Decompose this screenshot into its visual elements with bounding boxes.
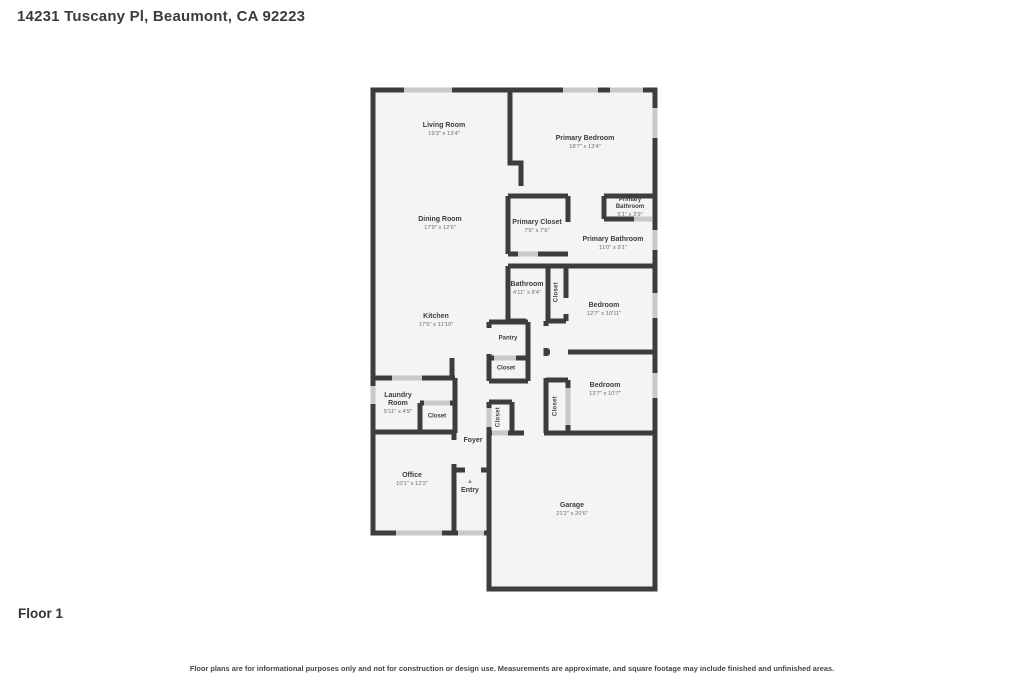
disclaimer-text: Floor plans are for informational purpos… <box>190 664 834 673</box>
floor-plan-page: 14231 Tuscany Pl, Beaumont, CA 92223 Liv… <box>0 0 1024 683</box>
floor-label: Floor 1 <box>18 606 63 621</box>
floor-plan-drawing <box>0 0 1024 683</box>
